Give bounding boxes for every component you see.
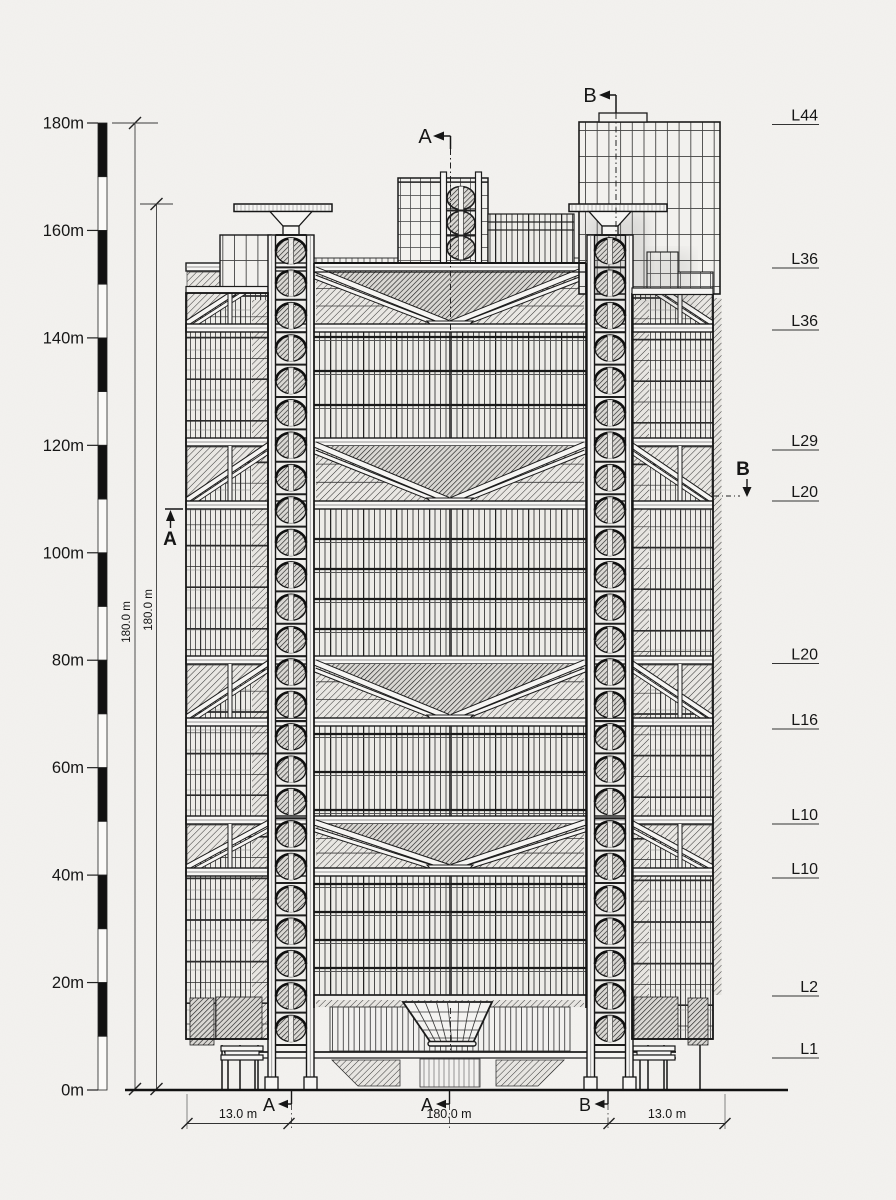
svg-text:L29: L29 (791, 433, 818, 450)
svg-text:100m: 100m (43, 544, 84, 562)
svg-text:B: B (583, 85, 596, 107)
svg-text:180.0 m: 180.0 m (426, 1107, 471, 1121)
svg-text:L16: L16 (791, 712, 818, 729)
svg-text:13.0 m: 13.0 m (648, 1107, 686, 1121)
svg-text:160m: 160m (43, 222, 84, 240)
svg-text:A: A (418, 126, 432, 148)
svg-text:180.0 m: 180.0 m (121, 601, 133, 643)
svg-text:0m: 0m (61, 1082, 84, 1100)
svg-text:120m: 120m (43, 437, 84, 455)
svg-text:L20: L20 (791, 484, 818, 501)
svg-text:140m: 140m (43, 329, 84, 347)
svg-text:B: B (579, 1095, 591, 1115)
svg-text:60m: 60m (52, 759, 84, 777)
svg-text:L10: L10 (791, 807, 818, 824)
svg-text:L10: L10 (791, 861, 818, 878)
svg-text:L1: L1 (800, 1041, 818, 1058)
svg-text:180.0 m: 180.0 m (143, 589, 155, 631)
svg-text:13.0 m: 13.0 m (219, 1107, 257, 1121)
svg-text:20m: 20m (52, 974, 84, 992)
svg-text:B: B (736, 459, 750, 480)
svg-text:80m: 80m (52, 652, 84, 670)
svg-text:L2: L2 (800, 979, 818, 996)
svg-text:A: A (163, 529, 177, 550)
svg-text:L20: L20 (791, 647, 818, 664)
svg-text:40m: 40m (52, 867, 84, 885)
svg-text:L36: L36 (791, 313, 818, 330)
svg-text:L44: L44 (791, 108, 818, 125)
svg-text:A: A (263, 1095, 275, 1115)
svg-text:L36: L36 (791, 251, 818, 268)
svg-text:180m: 180m (43, 115, 84, 133)
